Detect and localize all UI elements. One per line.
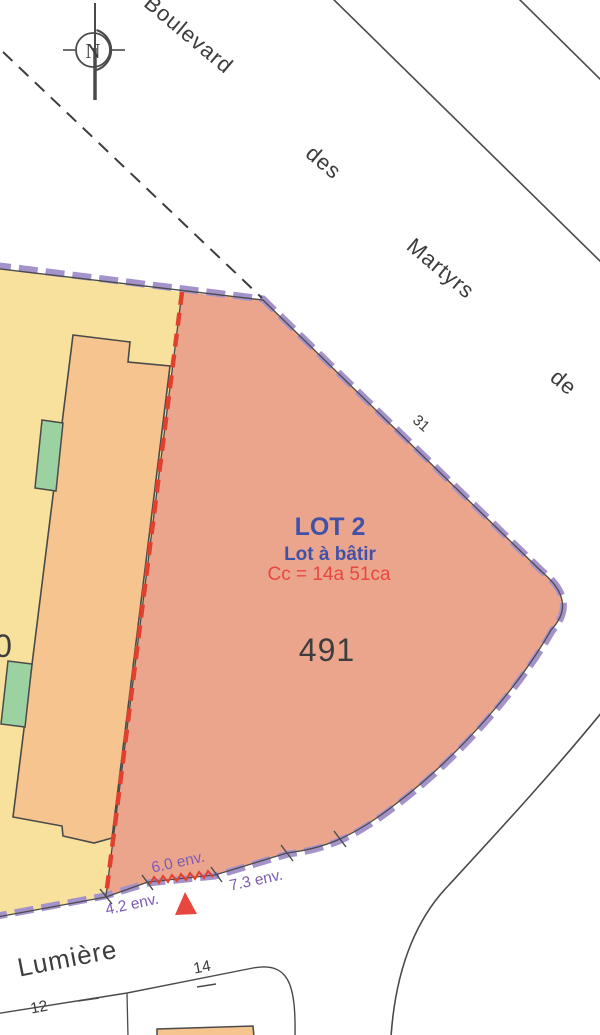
- lumiere-corner-curve: [253, 967, 295, 1035]
- north-arrow: N: [63, 3, 125, 100]
- parcel-number-partial-left: 0: [0, 628, 12, 664]
- house-number-12: 12: [29, 998, 49, 1018]
- parcel-lot2: [106, 292, 563, 897]
- street-name-boulevard-word-2: des: [301, 140, 347, 184]
- street-number-31: 31: [409, 412, 433, 436]
- survey-triangle-marker: [175, 892, 197, 915]
- street-name-boulevard-word-4: de: [546, 364, 582, 400]
- street-name-boulevard-word-3: Martyrs: [402, 233, 480, 304]
- street-name-lumiere: Lumière: [15, 934, 120, 983]
- house-number-14: 14: [192, 958, 213, 978]
- boulevard-centerline-dashed: [3, 52, 262, 298]
- parcel-divider-12-14: [127, 993, 128, 1035]
- entrance-mark-14: [197, 984, 216, 987]
- street-name-boulevard-word-1: Boulevard: [139, 0, 238, 79]
- cadastral-plan-canvas: N Boulevard des Martyrs de 31 LOT 2 Lot …: [0, 0, 600, 1035]
- cadastral-plan-svg: N Boulevard des Martyrs de 31 LOT 2 Lot …: [0, 0, 600, 1035]
- lot2-area-label: Cc = 14a 51ca: [267, 564, 390, 585]
- lot2-title: LOT 2: [295, 513, 366, 541]
- compass-north-label: N: [85, 39, 100, 63]
- building-footprint-bottom: [157, 1026, 254, 1035]
- boulevard-curb-line-top-right: [517, 0, 600, 80]
- parcel-number-491: 491: [299, 632, 355, 668]
- lot2-subtitle: Lot à bâtir: [284, 544, 376, 565]
